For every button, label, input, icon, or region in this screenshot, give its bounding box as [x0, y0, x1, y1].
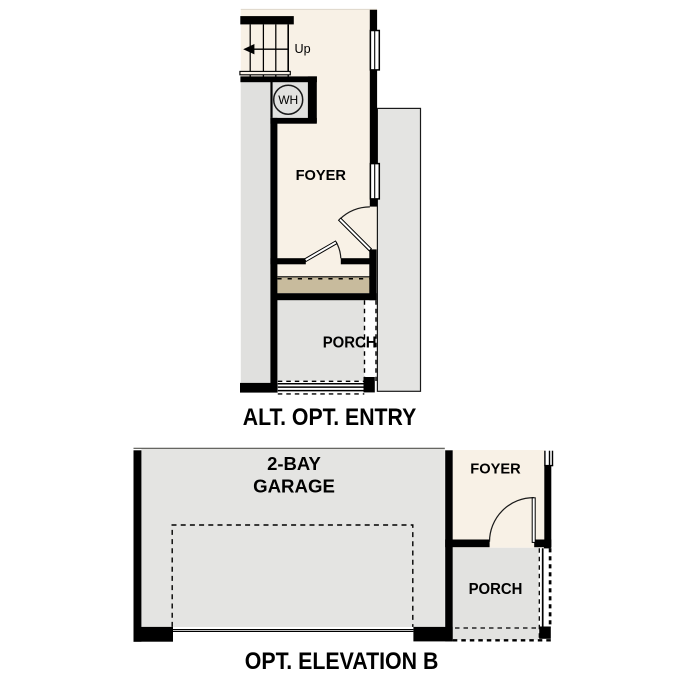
svg-text:OPT. ELEVATION B: OPT. ELEVATION B [245, 648, 439, 675]
svg-text:FOYER: FOYER [470, 461, 521, 478]
svg-text:PORCH: PORCH [323, 335, 377, 352]
svg-text:ALT. OPT. ENTRY: ALT. OPT. ENTRY [243, 404, 417, 431]
svg-text:GARAGE: GARAGE [253, 476, 335, 496]
svg-text:PORCH: PORCH [469, 581, 523, 598]
svg-text:Up: Up [295, 42, 311, 56]
svg-text:FOYER: FOYER [296, 167, 347, 184]
svg-text:WH: WH [278, 93, 298, 107]
svg-text:2-BAY: 2-BAY [267, 454, 321, 474]
